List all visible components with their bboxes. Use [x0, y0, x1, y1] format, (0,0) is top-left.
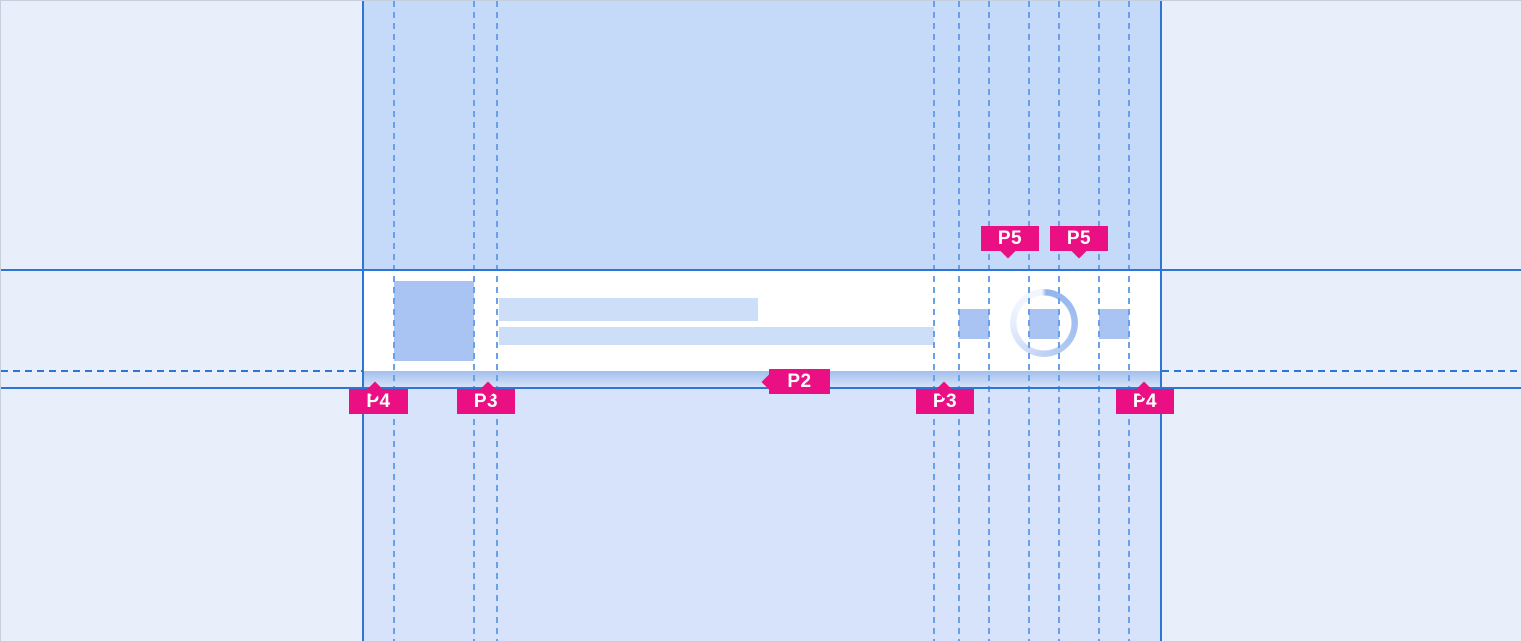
guide-icon1-left	[958, 1, 960, 642]
guide-content-bottom-left	[1, 370, 362, 372]
annotation-p3-left: P3	[457, 389, 515, 414]
annotation-p5-first: P5	[981, 226, 1039, 251]
guide-icon3-left	[1098, 1, 1100, 642]
annotation-p5-second: P5	[1050, 226, 1108, 251]
guide-text-right	[933, 1, 935, 642]
annotation-p4-right: P4	[1116, 389, 1174, 414]
guide-icon1-right	[988, 1, 990, 642]
guide-avatar-left	[393, 1, 395, 642]
guide-column-left-line	[362, 1, 364, 642]
guide-icon3-right	[1128, 1, 1130, 642]
guide-avatar-right	[473, 1, 475, 642]
spec-canvas: P4 P3 P2 P5 P5 P3 P4	[0, 0, 1522, 642]
annotation-p3-right: P3	[916, 389, 974, 414]
column-highlight-top	[364, 1, 1160, 269]
trailing-icon-placeholder-3	[1099, 309, 1129, 339]
guide-content-bottom-right	[1162, 370, 1522, 372]
guide-column-right-line	[1160, 1, 1162, 642]
guide-row-bottom-line	[1, 387, 1522, 389]
guide-icon2-right	[1058, 1, 1060, 642]
title-text-placeholder	[499, 298, 758, 321]
annotation-p2: P2	[769, 369, 830, 394]
annotation-p4-left: P4	[349, 389, 408, 414]
trailing-icon-placeholder-2	[1029, 309, 1059, 339]
subtitle-text-placeholder	[499, 327, 934, 345]
trailing-icon-placeholder-1	[959, 309, 989, 339]
guide-row-top-line	[1, 269, 1522, 271]
avatar-placeholder	[394, 281, 474, 361]
guide-icon2-left	[1028, 1, 1030, 642]
guide-text-left	[496, 1, 498, 642]
column-highlight-bottom	[364, 389, 1160, 642]
